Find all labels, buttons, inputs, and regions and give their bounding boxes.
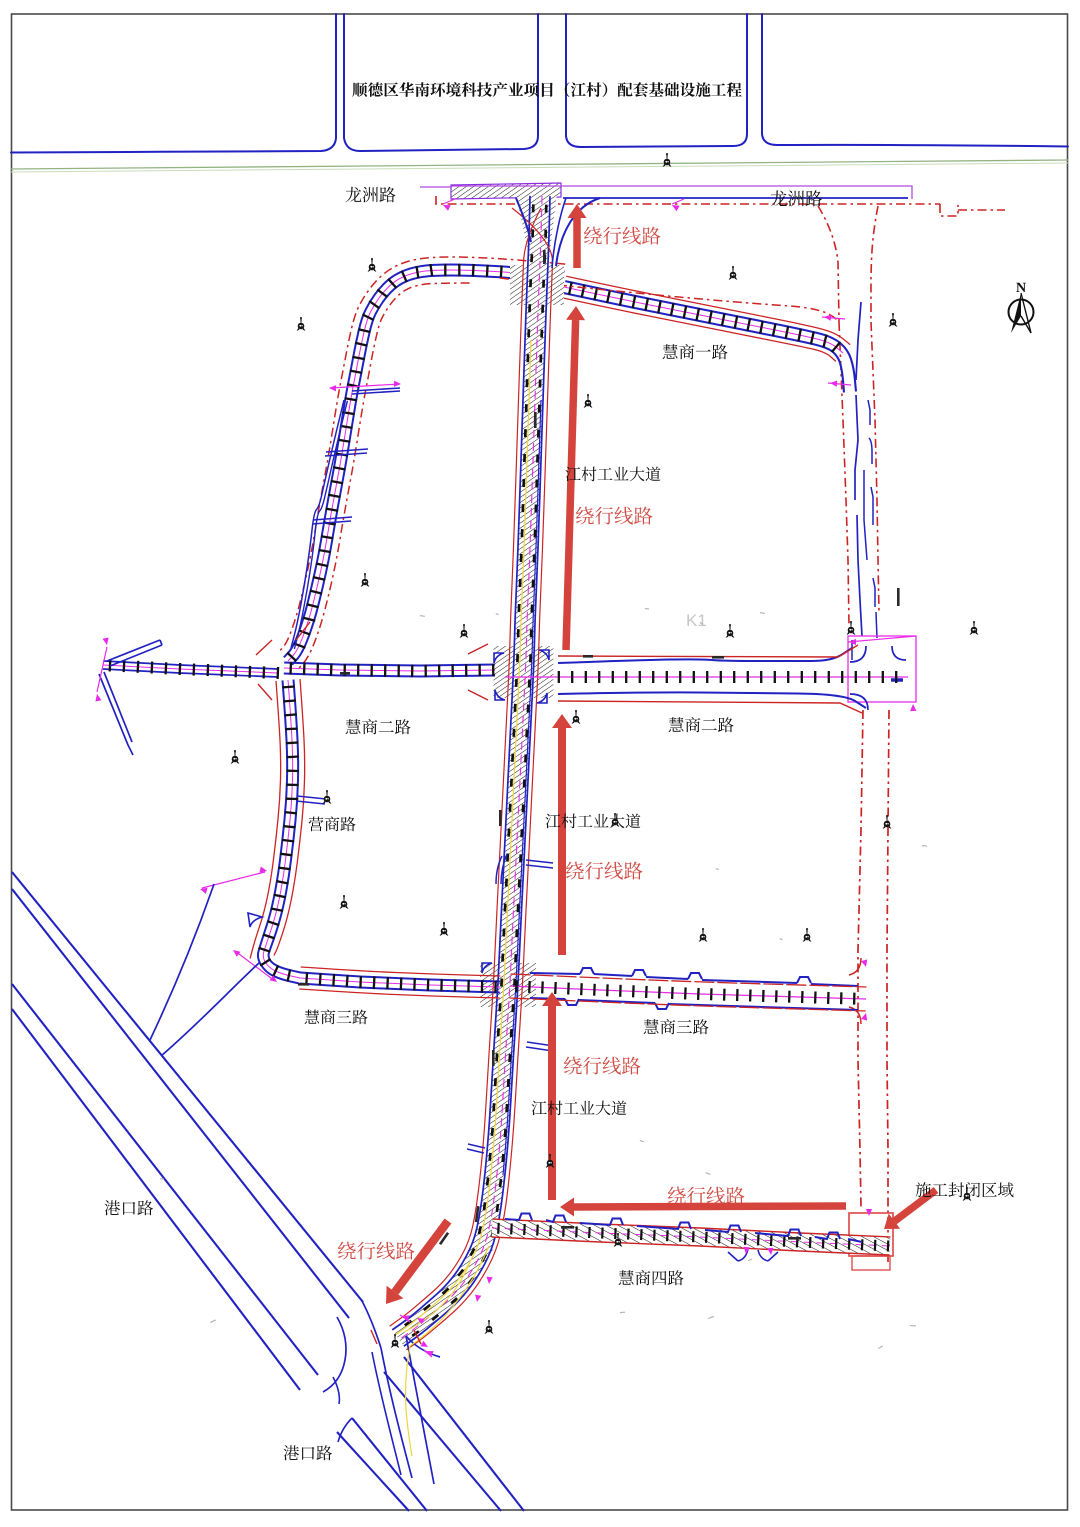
svg-text:K1: K1 bbox=[686, 611, 707, 630]
